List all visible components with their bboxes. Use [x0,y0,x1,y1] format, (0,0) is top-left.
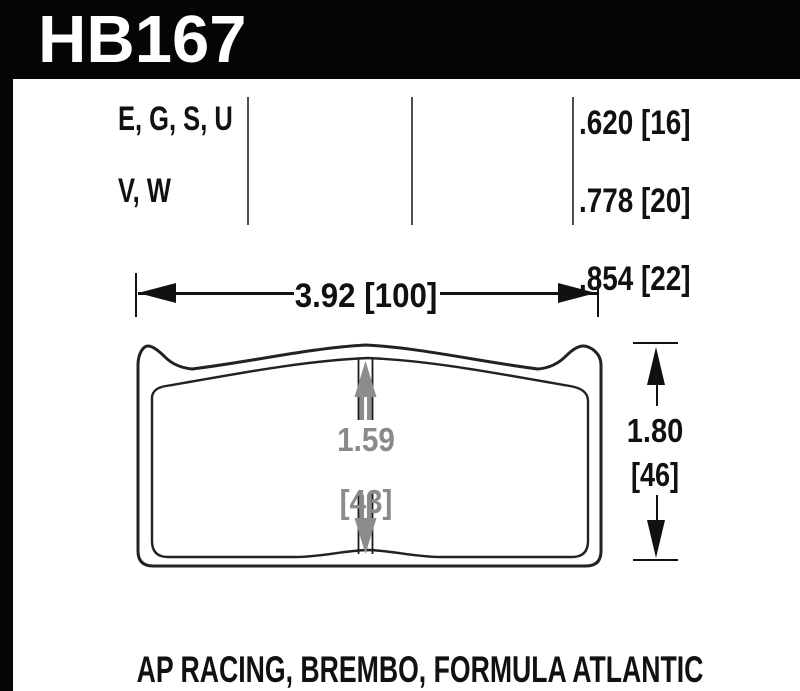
width-extension-line-left [135,273,137,317]
height-dimension-inches: 1.80 [585,412,726,450]
height-arrow-up-shaft [656,383,658,406]
divider-line-3 [572,97,574,225]
width-extension-line-right [597,273,599,317]
width-dimension-label: 3.92 [100] [228,277,504,316]
height-extension-line-bottom [633,559,678,561]
part-number: HB167 [38,0,247,79]
pad-thickness-1: .620 [16] [579,104,691,142]
height-arrow-up-icon [647,347,665,385]
applications-label: AP RACING, BREMBO, FORMULA ATLANTIC [132,649,708,691]
divider-line-2 [411,97,413,225]
width-arrow-right-icon [558,283,596,303]
height-extension-line-top [633,342,678,344]
compound-codes-line1: E, G, S, U [118,100,233,138]
divider-line-1 [247,97,249,225]
height-dimension-mm: [46] [589,456,720,494]
brake-pad-spec-sheet: HB167 E, G, S, U V, W .620 [16] .778 [20… [0,0,800,691]
pad-thickness-list: .620 [16] .778 [20] .854 [22] [579,104,691,299]
height-arrow-down-icon [647,520,665,558]
center-dimension-inches: 1.59 [337,421,395,458]
width-arrow-left-icon [138,283,176,303]
pad-thickness-2: .778 [20] [579,182,691,220]
compound-codes: E, G, S, U V, W [118,101,233,209]
center-dimension-label: 1.59 [43] [276,424,456,517]
left-frame-bar [0,79,13,691]
center-dimension-mm: [43] [340,483,393,520]
height-arrow-down-shaft [656,495,658,522]
compound-codes-line2: V, W [118,172,171,210]
